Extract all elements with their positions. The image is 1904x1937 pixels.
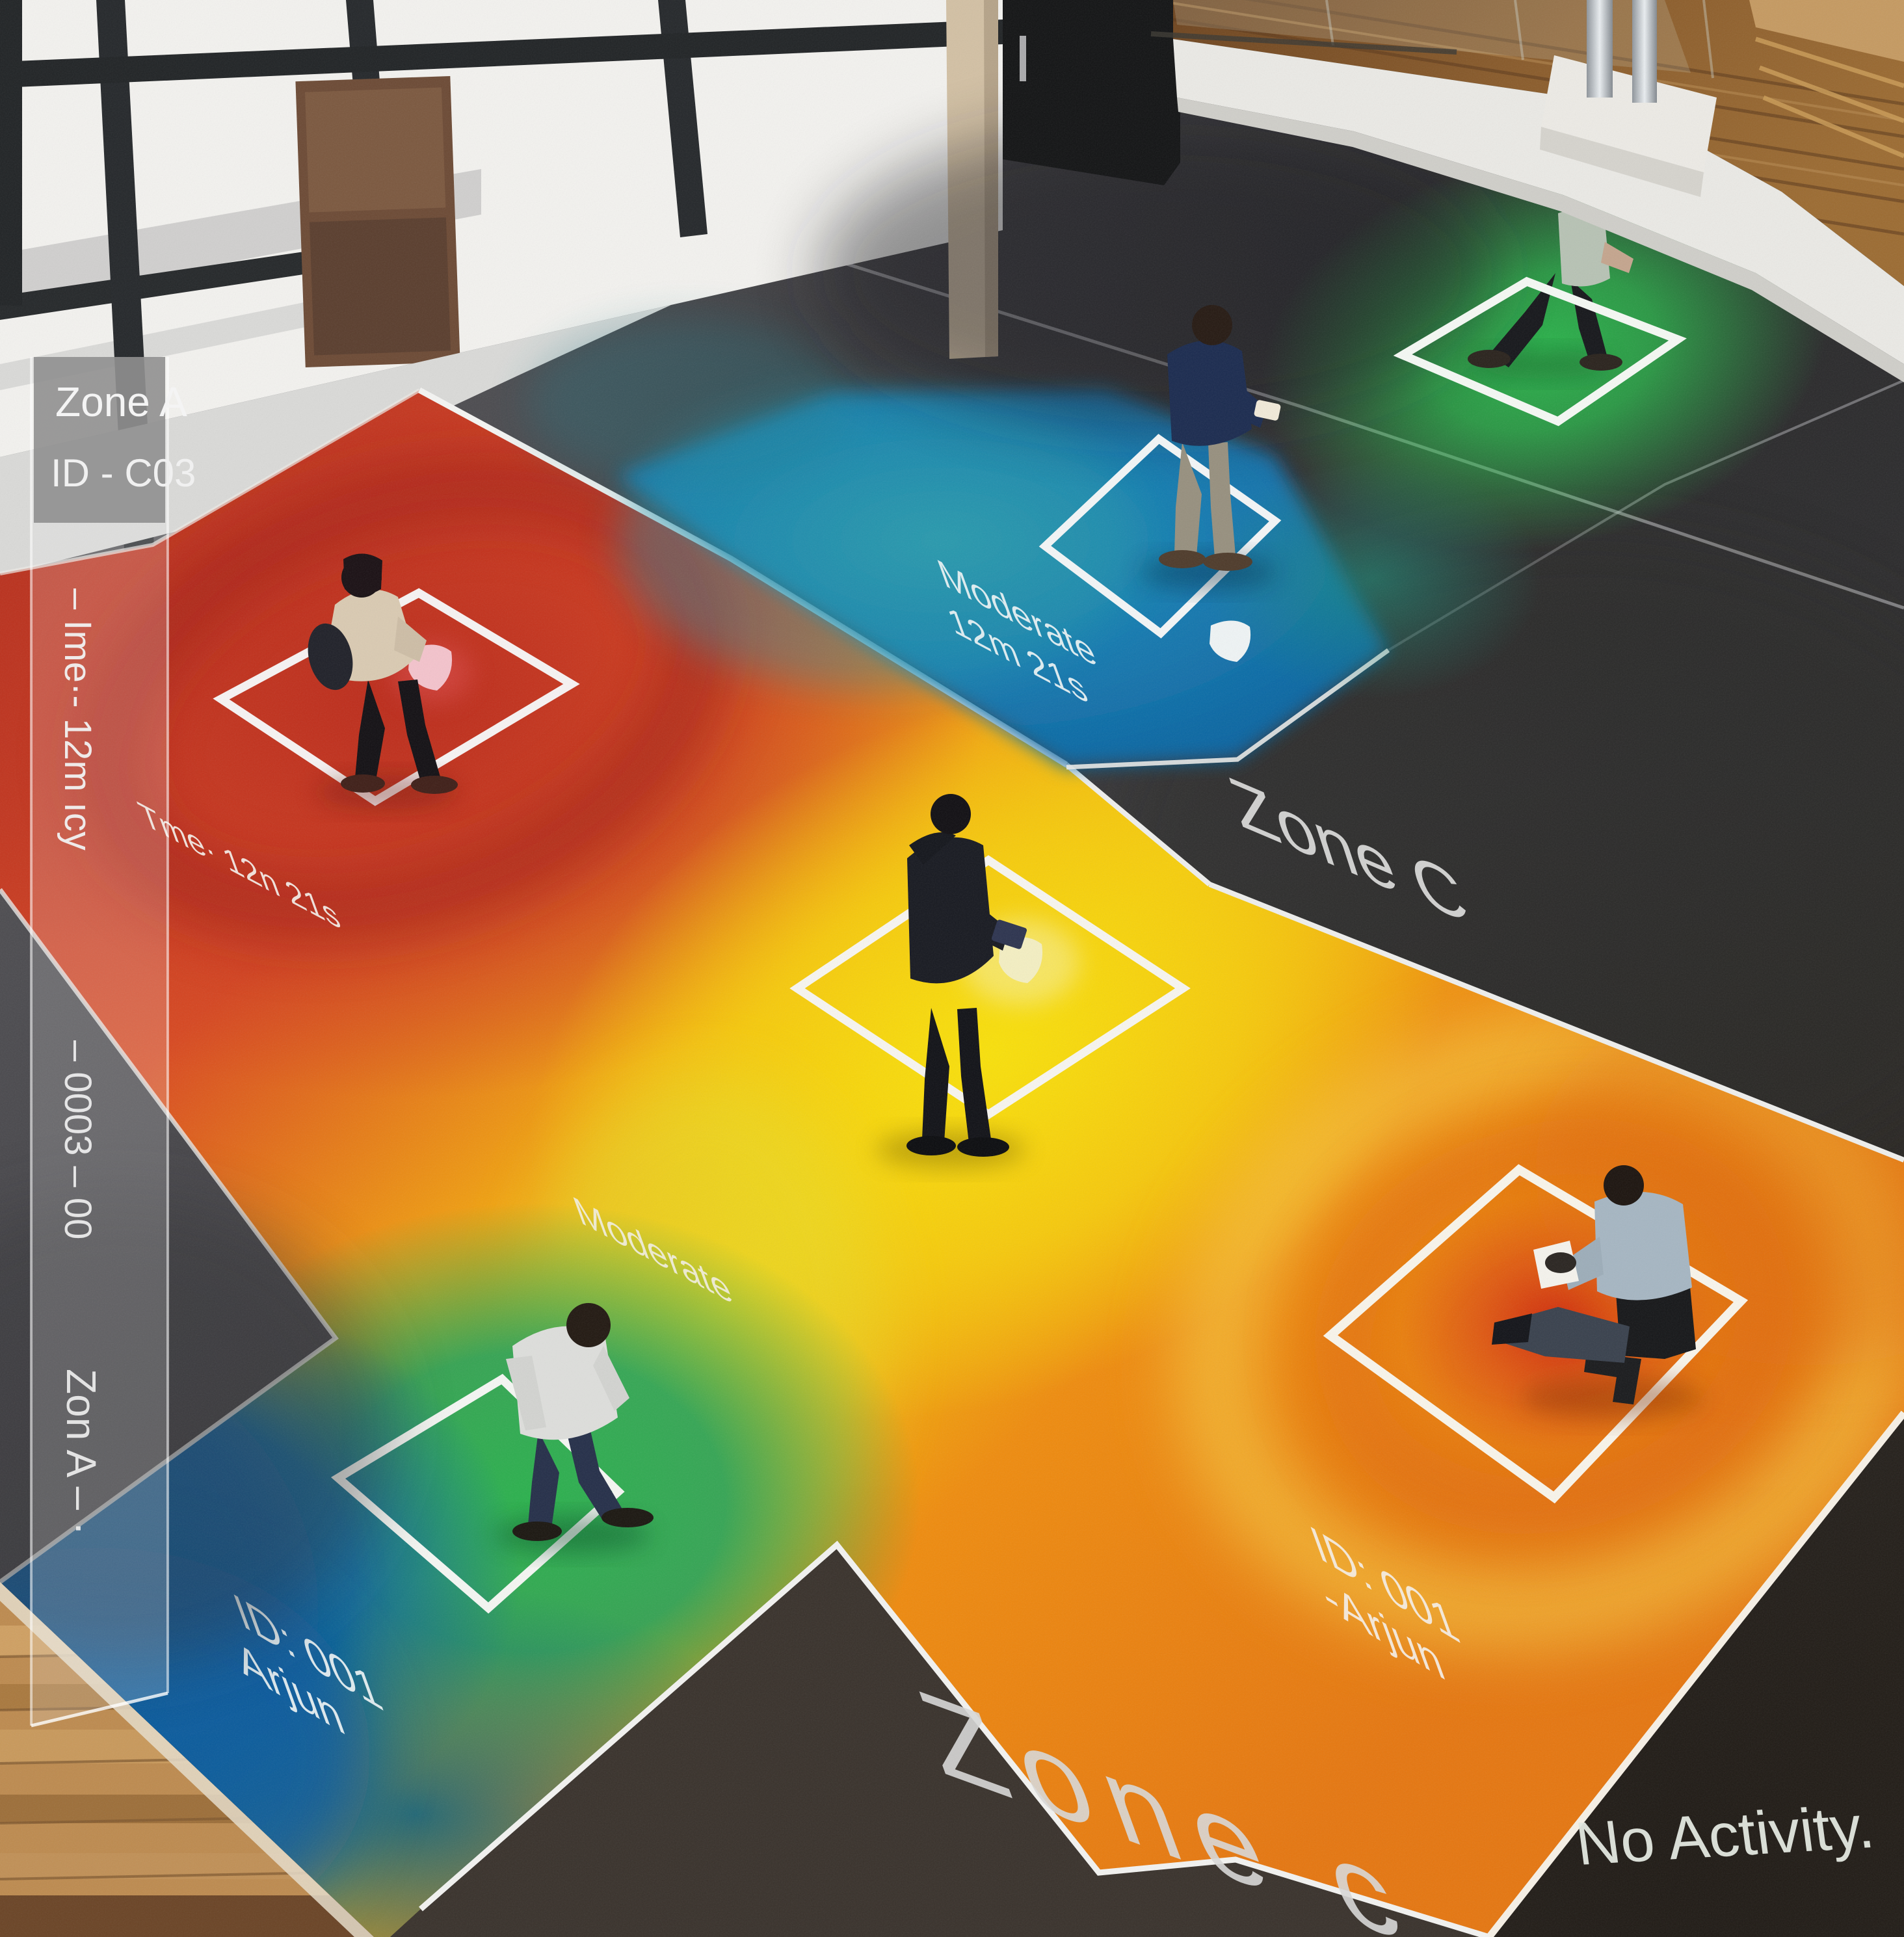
svg-text:– Ime·- 12m ıcy: – Ime·- 12m ıcy	[57, 588, 99, 850]
svg-text:ID - C03: ID - C03	[51, 451, 196, 495]
svg-text:Zon A – ·: Zon A – ·	[58, 1369, 105, 1535]
svg-text:Zone A: Zone A	[55, 378, 187, 425]
svg-text:– 0003 – 00: – 0003 – 00	[57, 1040, 99, 1239]
